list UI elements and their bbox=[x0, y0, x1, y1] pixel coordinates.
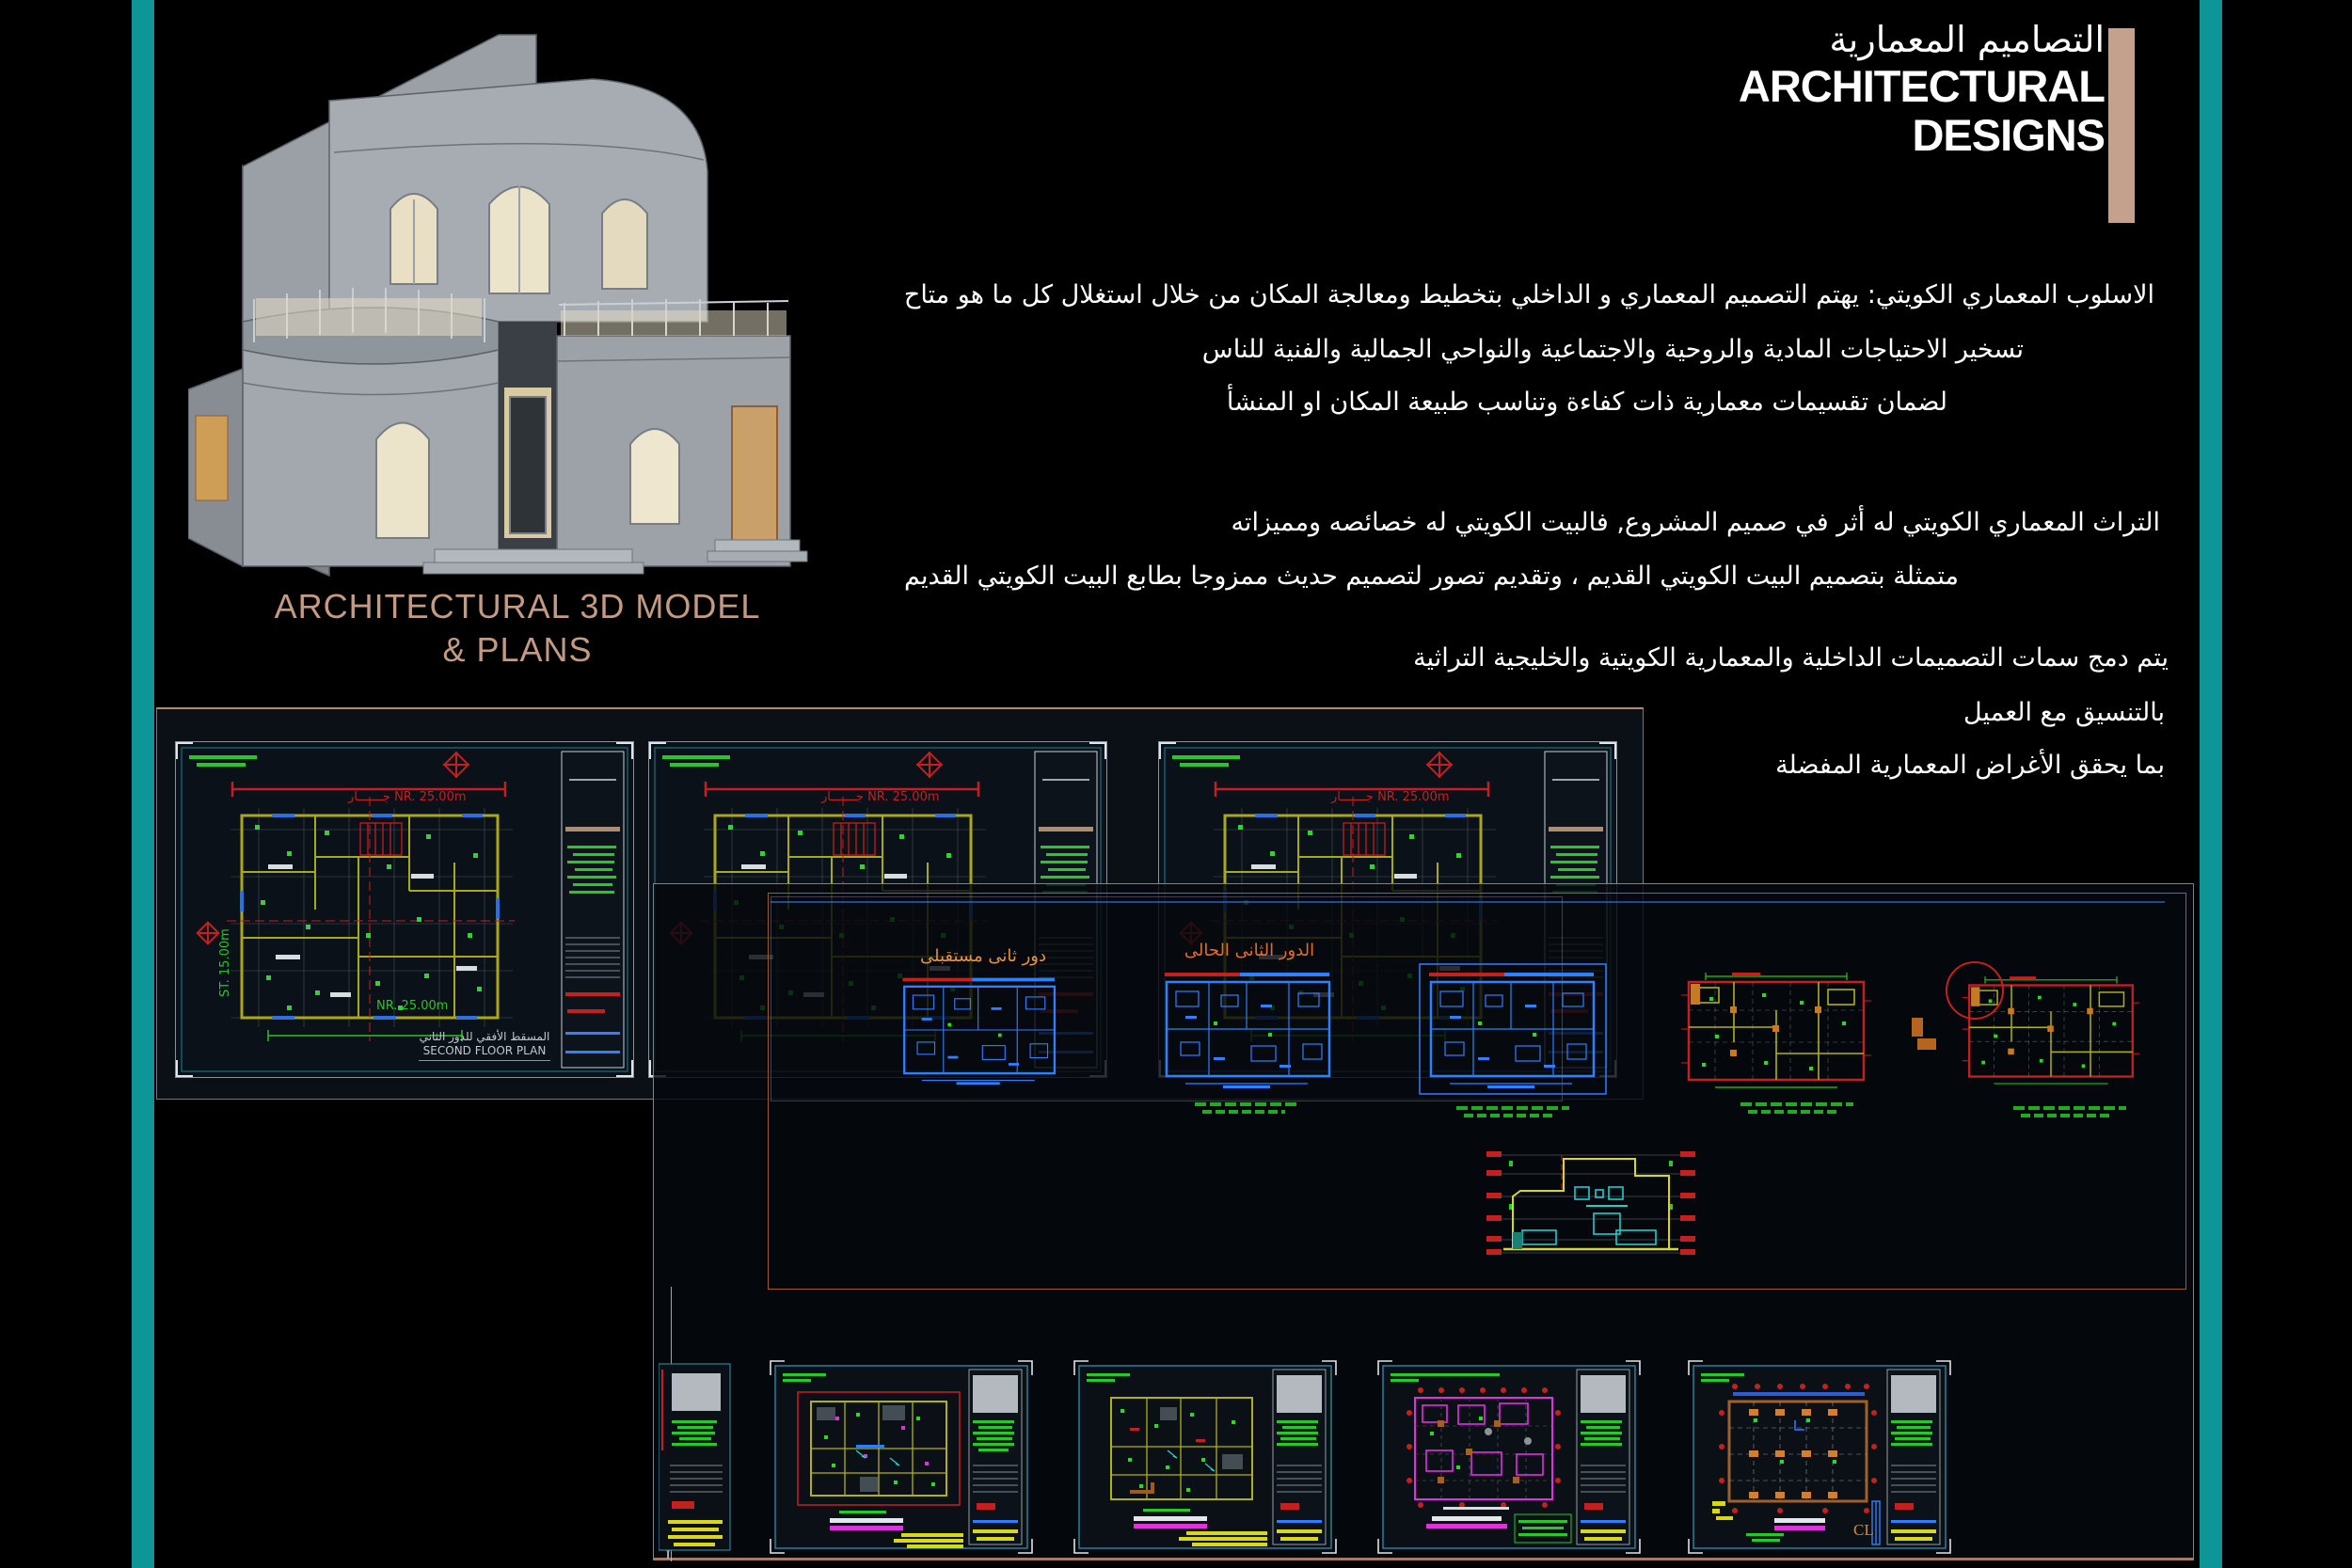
page-title: التصاميم المعمارية ARCHITECTURAL DESIGNS bbox=[1739, 17, 2105, 160]
intro-line-1: الاسلوب المعماري الكويتي: يهتم التصميم ا… bbox=[904, 280, 2154, 309]
left-teal-accent-bar bbox=[132, 0, 154, 1568]
cad-sheet-bottom-1 bbox=[770, 1360, 1033, 1554]
blue-plan-third bbox=[1419, 963, 1607, 1095]
blue-plan-future-label: دور ثانى مستقبلى bbox=[894, 946, 1073, 966]
blue-plan-current-label: الدور الثانى الحالى bbox=[1155, 941, 1343, 960]
page-title-english-line1: ARCHITECTURAL bbox=[1739, 62, 2105, 111]
cad-sheet-bottom-partial bbox=[659, 1360, 732, 1554]
heritage-line-2: متمثلة بتصميم البيت الكويتي القديم ، وتق… bbox=[904, 562, 1959, 591]
intro-line-3: لضمان تقسيمات معمارية ذات كفاءة وتناسب ط… bbox=[1227, 388, 1947, 417]
page-title-english-line2: DESIGNS bbox=[1739, 111, 2105, 160]
model-caption-line1: ARCHITECTURAL 3D MODEL bbox=[235, 585, 800, 628]
building-3d-model-image bbox=[188, 11, 847, 583]
blue-plan-future bbox=[896, 969, 1065, 1091]
sheet1-dim-top: جـــــــار NR. 25.00m bbox=[348, 790, 467, 804]
merge-line-2: بالتنسيق مع العميل bbox=[1963, 698, 2165, 727]
sheet3-dim-top: جـــــــار NR. 25.00m bbox=[1331, 790, 1450, 804]
blue-plan-third-caption bbox=[1456, 1106, 1569, 1125]
orange-block-2 bbox=[1917, 1038, 1936, 1050]
cad-sheet-bottom-4-foundation: CL bbox=[1688, 1360, 1951, 1554]
blue-plan-current bbox=[1157, 967, 1341, 1091]
cl-label: CL bbox=[1853, 1521, 1874, 1539]
elevation-drawing bbox=[1485, 1138, 1696, 1270]
red-plan-left bbox=[1677, 969, 1876, 1093]
intro-line-2: تسخير الاحتياجات المادية والروحية والاجت… bbox=[1202, 335, 2024, 364]
orange-block-1 bbox=[1912, 1018, 1923, 1037]
sheet2-dim-top: جـــــــار NR. 25.00m bbox=[821, 790, 940, 804]
sheet1-title-english: SECOND FLOOR PLAN bbox=[419, 1044, 550, 1061]
red-circle-annotation bbox=[1946, 961, 2004, 1020]
title-tan-accent-bar bbox=[2108, 28, 2135, 223]
heritage-line-1: التراث المعماري الكويتي له أثر في صميم ا… bbox=[1231, 508, 2160, 537]
blue-plan-current-caption bbox=[1195, 1102, 1298, 1121]
slide-architectural-designs: التصاميم المعمارية ARCHITECTURAL DESIGNS bbox=[0, 0, 2352, 1568]
red-plan-left-caption bbox=[1740, 1102, 1853, 1121]
sheet1-title: المسقط الأفقي للدور الثاني SECOND FLOOR … bbox=[419, 1030, 550, 1061]
red-plan-right-caption bbox=[2013, 1106, 2126, 1125]
cad-sheet-bottom-3 bbox=[1377, 1360, 1641, 1554]
sheet1-title-arabic: المسقط الأفقي للدور الثاني bbox=[419, 1030, 550, 1044]
model-caption: ARCHITECTURAL 3D MODEL & PLANS bbox=[235, 585, 800, 672]
merge-line-3: بما يحقق الأغراض المعمارية المفضلة bbox=[1775, 751, 2165, 780]
right-teal-accent-bar bbox=[2200, 0, 2222, 1568]
page-title-arabic: التصاميم المعمارية bbox=[1739, 17, 2105, 62]
sheet1-dim-side: ST. 15.00m bbox=[218, 928, 232, 997]
sheet1-dim-bottom: NR. 25.00m bbox=[376, 999, 448, 1013]
cad-sheet-bottom-2 bbox=[1073, 1360, 1337, 1554]
model-caption-line2: & PLANS bbox=[235, 628, 800, 672]
merge-line-1: يتم دمج سمات التصميمات الداخلية والمعمار… bbox=[1413, 643, 2169, 673]
